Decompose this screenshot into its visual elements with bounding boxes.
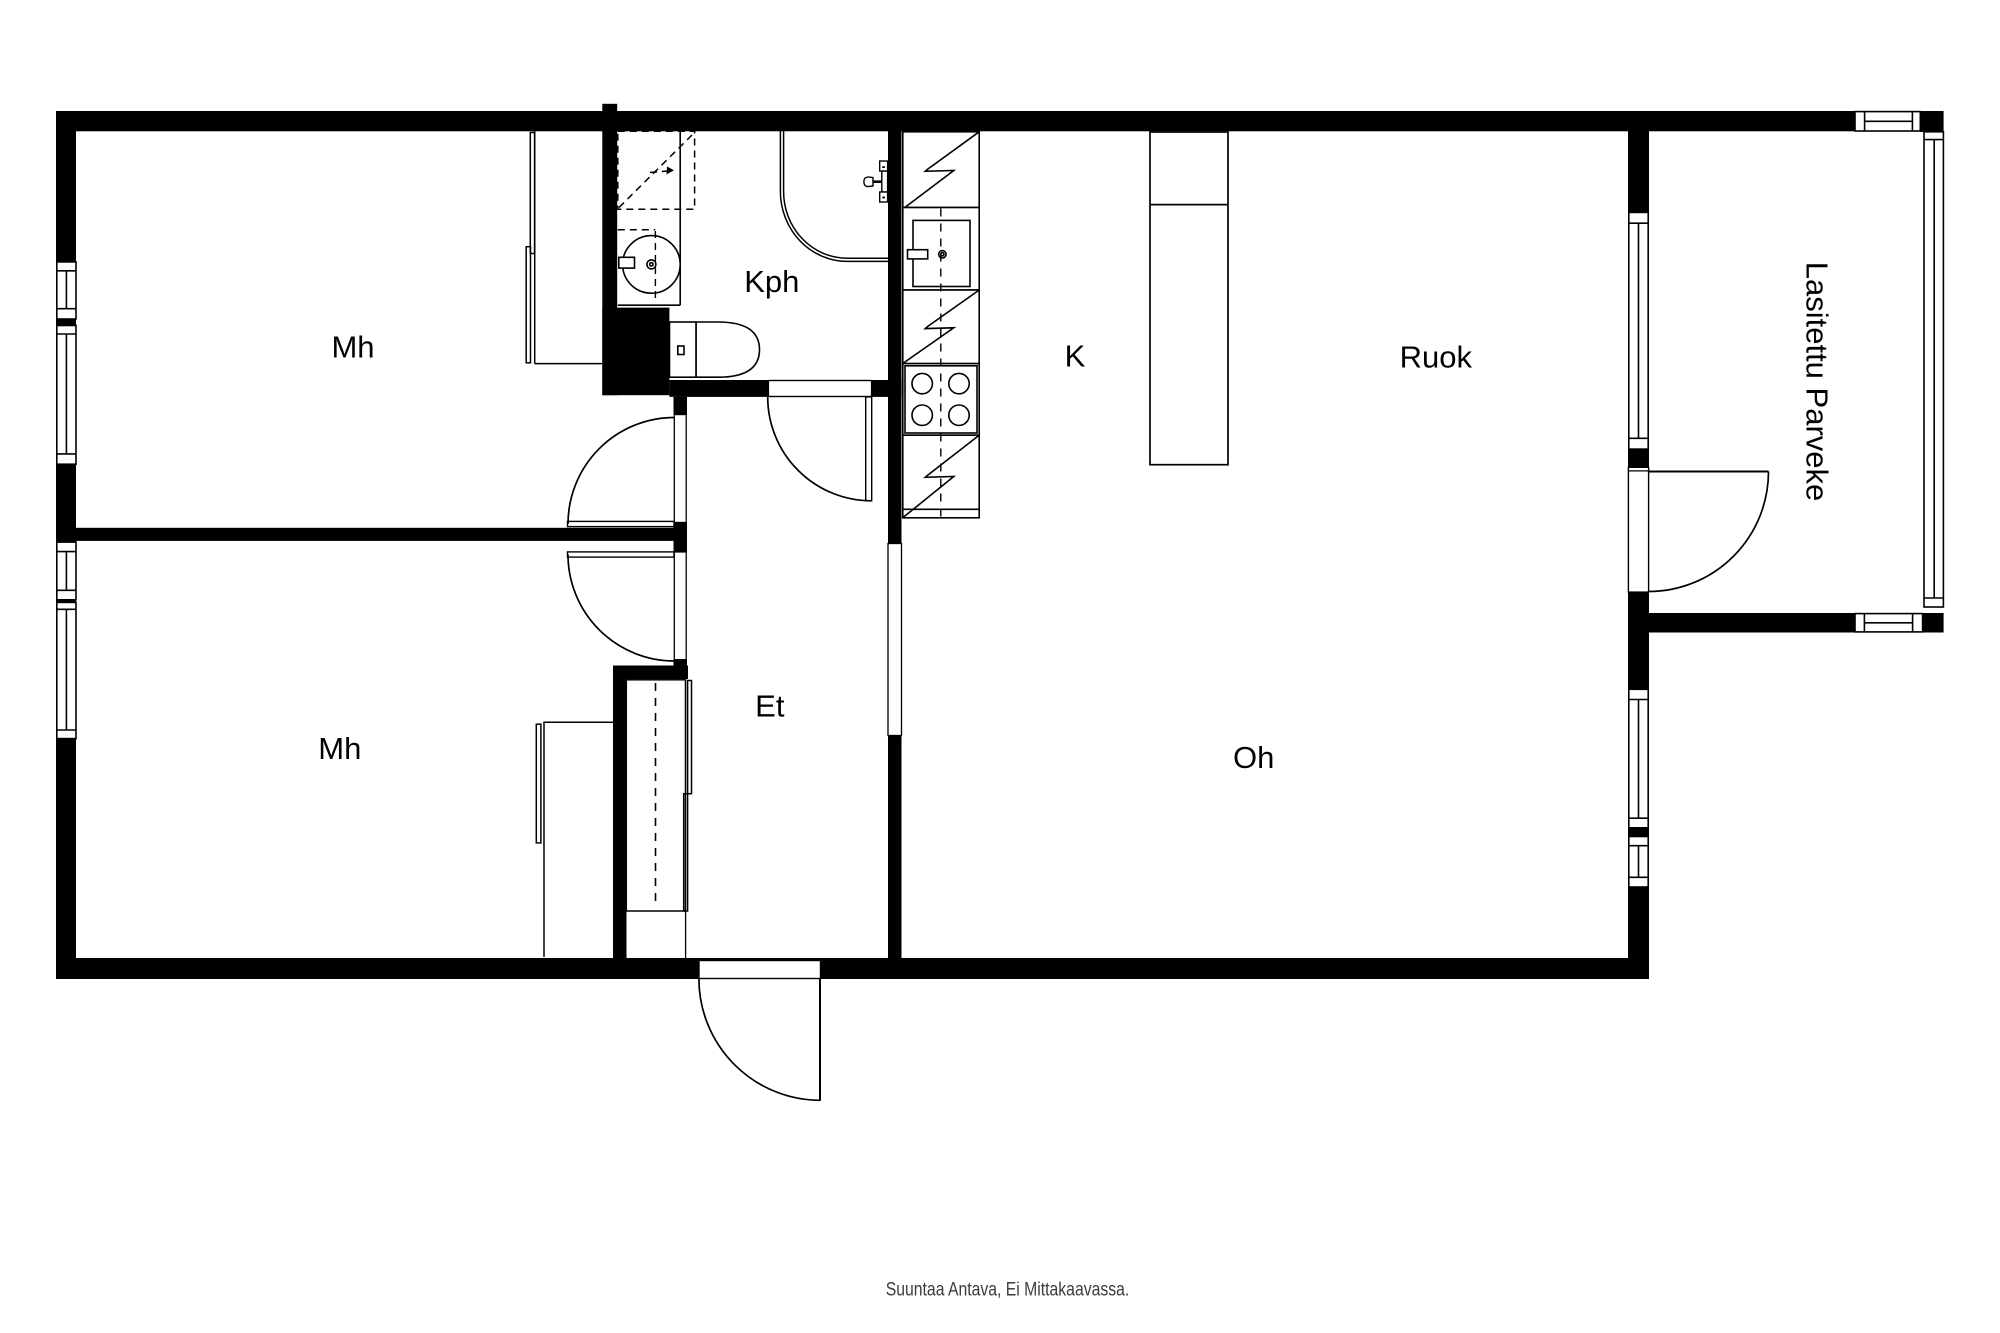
- svg-text:Lasitettu Parveke: Lasitettu Parveke: [1800, 262, 1835, 502]
- svg-text:K: K: [1065, 339, 1086, 374]
- svg-text:Kph: Kph: [744, 264, 799, 299]
- svg-text:Ruok: Ruok: [1400, 339, 1473, 374]
- svg-text:Mh: Mh: [331, 330, 374, 365]
- svg-text:Suuntaa Antava, Ei Mittakaavas: Suuntaa Antava, Ei Mittakaavassa.: [886, 1280, 1130, 1301]
- svg-text:Oh: Oh: [1233, 740, 1274, 775]
- svg-text:Mh: Mh: [318, 731, 361, 766]
- svg-text:Et: Et: [755, 688, 785, 723]
